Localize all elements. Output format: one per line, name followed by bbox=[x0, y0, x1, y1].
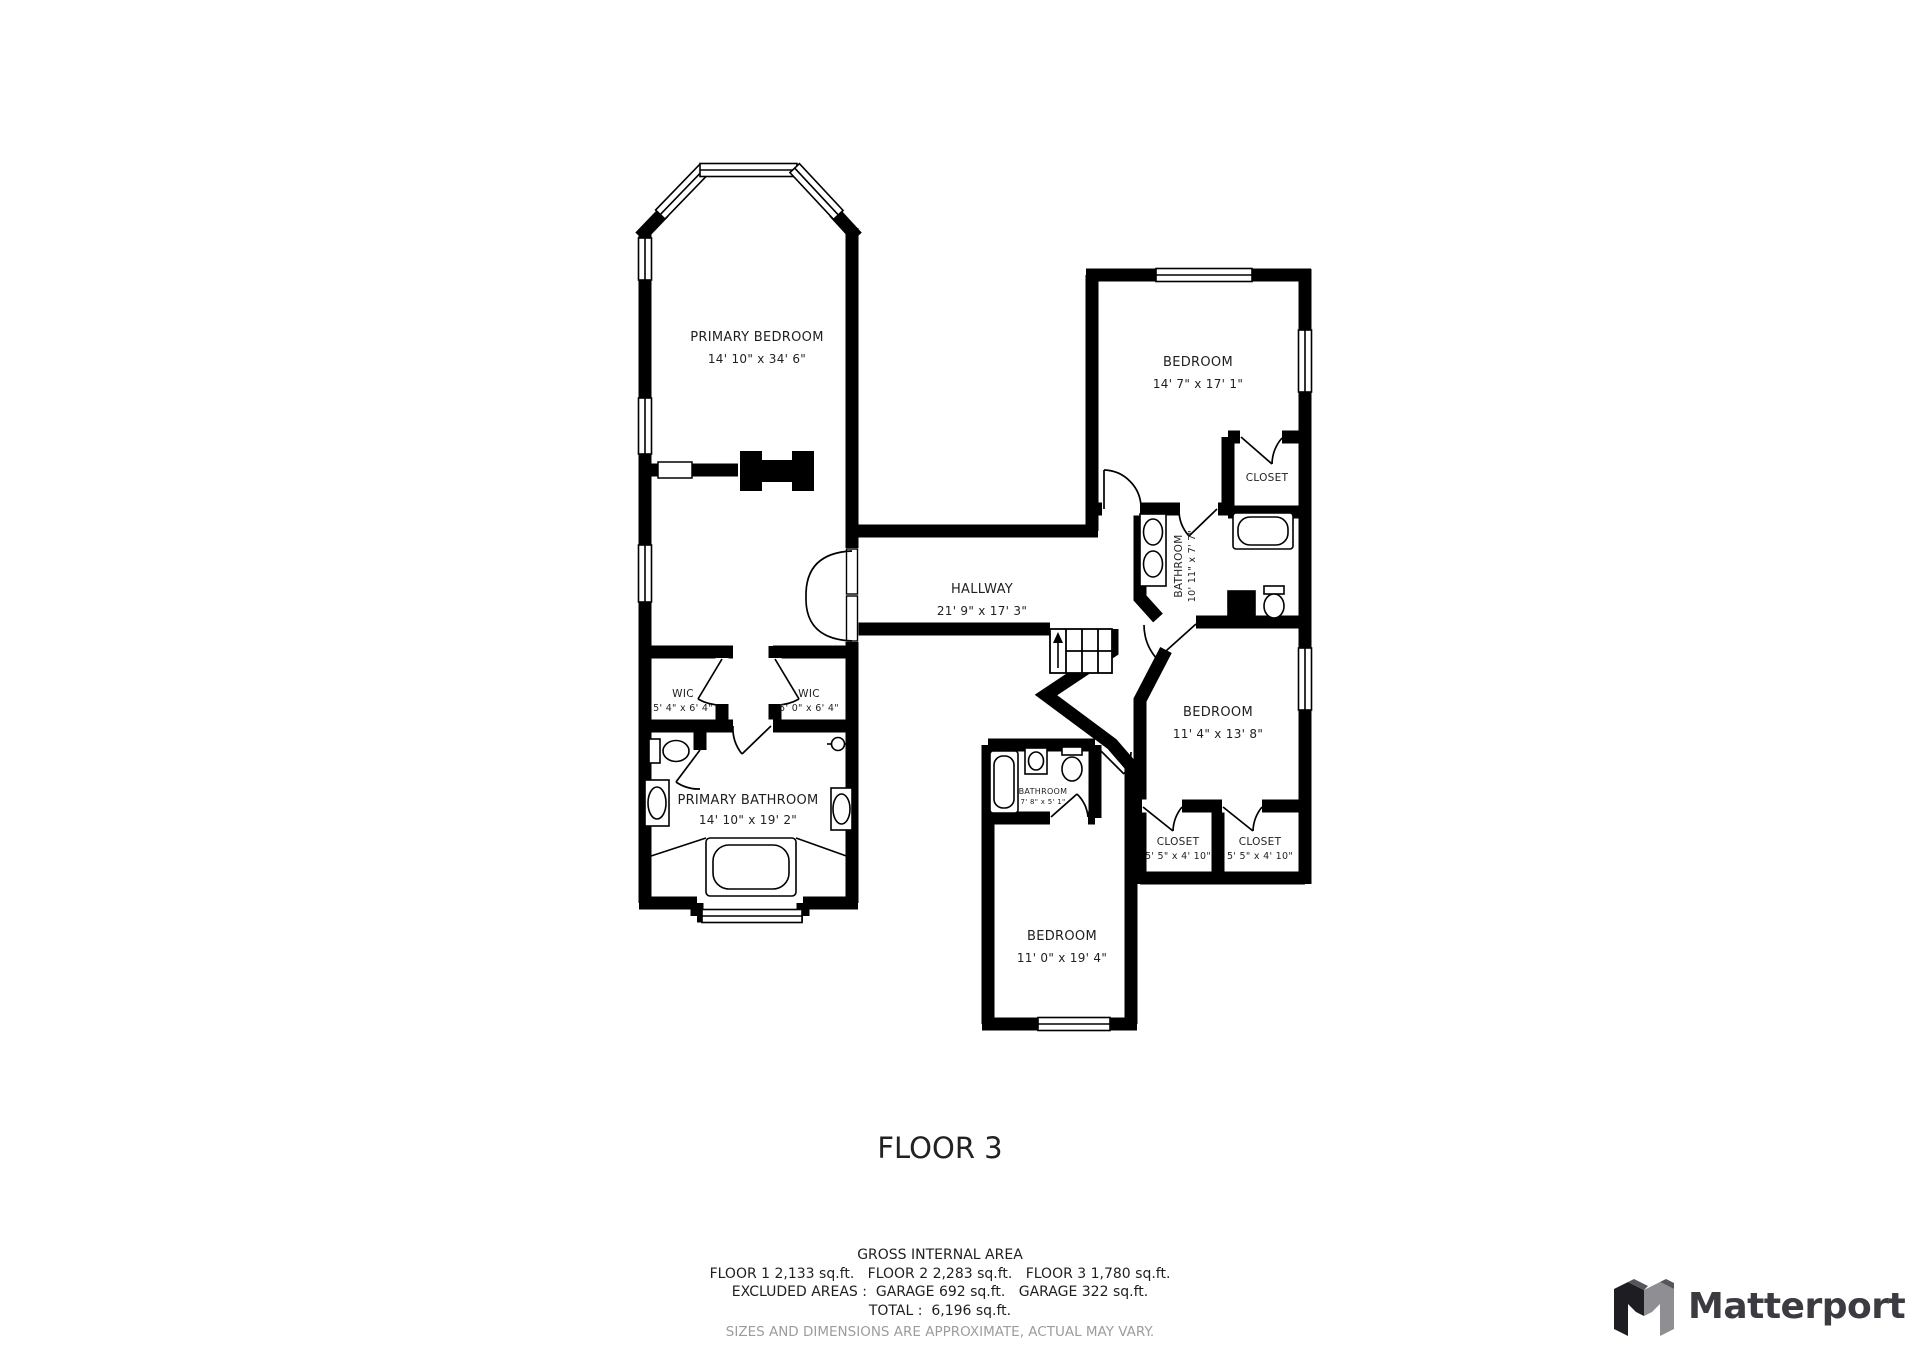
label-bathroom-right-group: BATHROOM 10' 11" x 7' 7" bbox=[1173, 530, 1198, 602]
size-disclaimer: SIZES AND DIMENSIONS ARE APPROXIMATE, AC… bbox=[0, 1323, 1880, 1342]
sink-glyph-primary-right bbox=[831, 788, 852, 830]
toilet-glyph-small bbox=[1062, 747, 1082, 781]
total-area-line: TOTAL : 6,196 sq.ft. bbox=[0, 1302, 1880, 1321]
excluded-areas-line: EXCLUDED AREAS : GARAGE 692 sq.ft. GARAG… bbox=[0, 1283, 1880, 1302]
matterport-wordmark: Matterport bbox=[1688, 1286, 1905, 1327]
floor-title: FLOOR 3 bbox=[0, 1131, 1880, 1165]
dims-bathroom-right: 10' 11" x 7' 7" bbox=[1187, 530, 1198, 602]
dims-primary-bathroom: 14' 10" x 19' 2" bbox=[699, 813, 797, 827]
dims-hallway: 21' 9" x 17' 3" bbox=[937, 604, 1027, 618]
label-primary-bathroom: PRIMARY BATHROOM bbox=[677, 793, 818, 808]
label-bedroom-mid-right: BEDROOM bbox=[1183, 705, 1253, 720]
dims-bathroom-small: 7' 8" x 5' 1" bbox=[1020, 798, 1065, 806]
stairs bbox=[1050, 629, 1112, 673]
label-hallway: HALLWAY bbox=[951, 582, 1013, 597]
dims-bedroom-mid-right: 11' 4" x 13' 8" bbox=[1173, 727, 1263, 741]
shower-glyph-right bbox=[1228, 591, 1255, 618]
label-wic-left: WIC bbox=[672, 688, 694, 700]
window-bay-right bbox=[790, 164, 843, 220]
toilet-glyph-primary bbox=[649, 739, 689, 763]
gross-area-block: GROSS INTERNAL AREA FLOOR 1 2,133 sq.ft.… bbox=[0, 1246, 1880, 1342]
label-bathroom-small: BATHROOM bbox=[1019, 787, 1068, 796]
label-closet-top-right: CLOSET bbox=[1246, 472, 1289, 484]
sink-glyph-primary-left bbox=[645, 780, 669, 826]
dims-closet-right: 5' 5" x 4' 10" bbox=[1227, 851, 1293, 862]
matterport-brand: Matterport bbox=[1612, 1274, 1905, 1338]
bathtub-glyph-primary bbox=[645, 838, 852, 896]
toilet-glyph-right bbox=[1264, 586, 1284, 618]
dims-closet-left: 5' 5" x 4' 10" bbox=[1145, 851, 1211, 862]
dims-wic-right: 5' 0" x 6' 4" bbox=[779, 703, 839, 714]
windows bbox=[639, 164, 1312, 1031]
dims-bedroom-top-right: 14' 7" x 17' 1" bbox=[1153, 377, 1243, 391]
matterport-logo-icon bbox=[1612, 1274, 1676, 1338]
floor-areas-line: FLOOR 1 2,133 sq.ft. FLOOR 2 2,283 sq.ft… bbox=[0, 1265, 1880, 1284]
label-closet-right: CLOSET bbox=[1239, 836, 1282, 848]
sink-glyph-small bbox=[1025, 748, 1047, 774]
dims-bedroom-bottom: 11' 0" x 19' 4" bbox=[1017, 951, 1107, 965]
dims-wic-left: 5' 4" x 6' 4" bbox=[653, 703, 713, 714]
floorplan-page: PRIMARY BEDROOM 14' 10" x 34' 6" BEDROOM… bbox=[0, 0, 1920, 1358]
label-bedroom-top-right: BEDROOM bbox=[1163, 355, 1233, 370]
label-closet-left: CLOSET bbox=[1157, 836, 1200, 848]
label-bedroom-bottom: BEDROOM bbox=[1027, 929, 1097, 944]
bathtub-glyph-right bbox=[1233, 513, 1293, 549]
label-bathroom-right: BATHROOM bbox=[1173, 534, 1185, 597]
dims-primary-bedroom: 14' 10" x 34' 6" bbox=[708, 352, 806, 366]
gross-area-heading: GROSS INTERNAL AREA bbox=[0, 1246, 1880, 1265]
label-wic-right: WIC bbox=[798, 688, 820, 700]
label-primary-bedroom: PRIMARY BEDROOM bbox=[690, 330, 823, 345]
double-sink-glyph-right bbox=[1140, 514, 1166, 586]
bathtub-glyph-small bbox=[990, 751, 1018, 813]
wall-left-wing-outer bbox=[639, 212, 858, 916]
